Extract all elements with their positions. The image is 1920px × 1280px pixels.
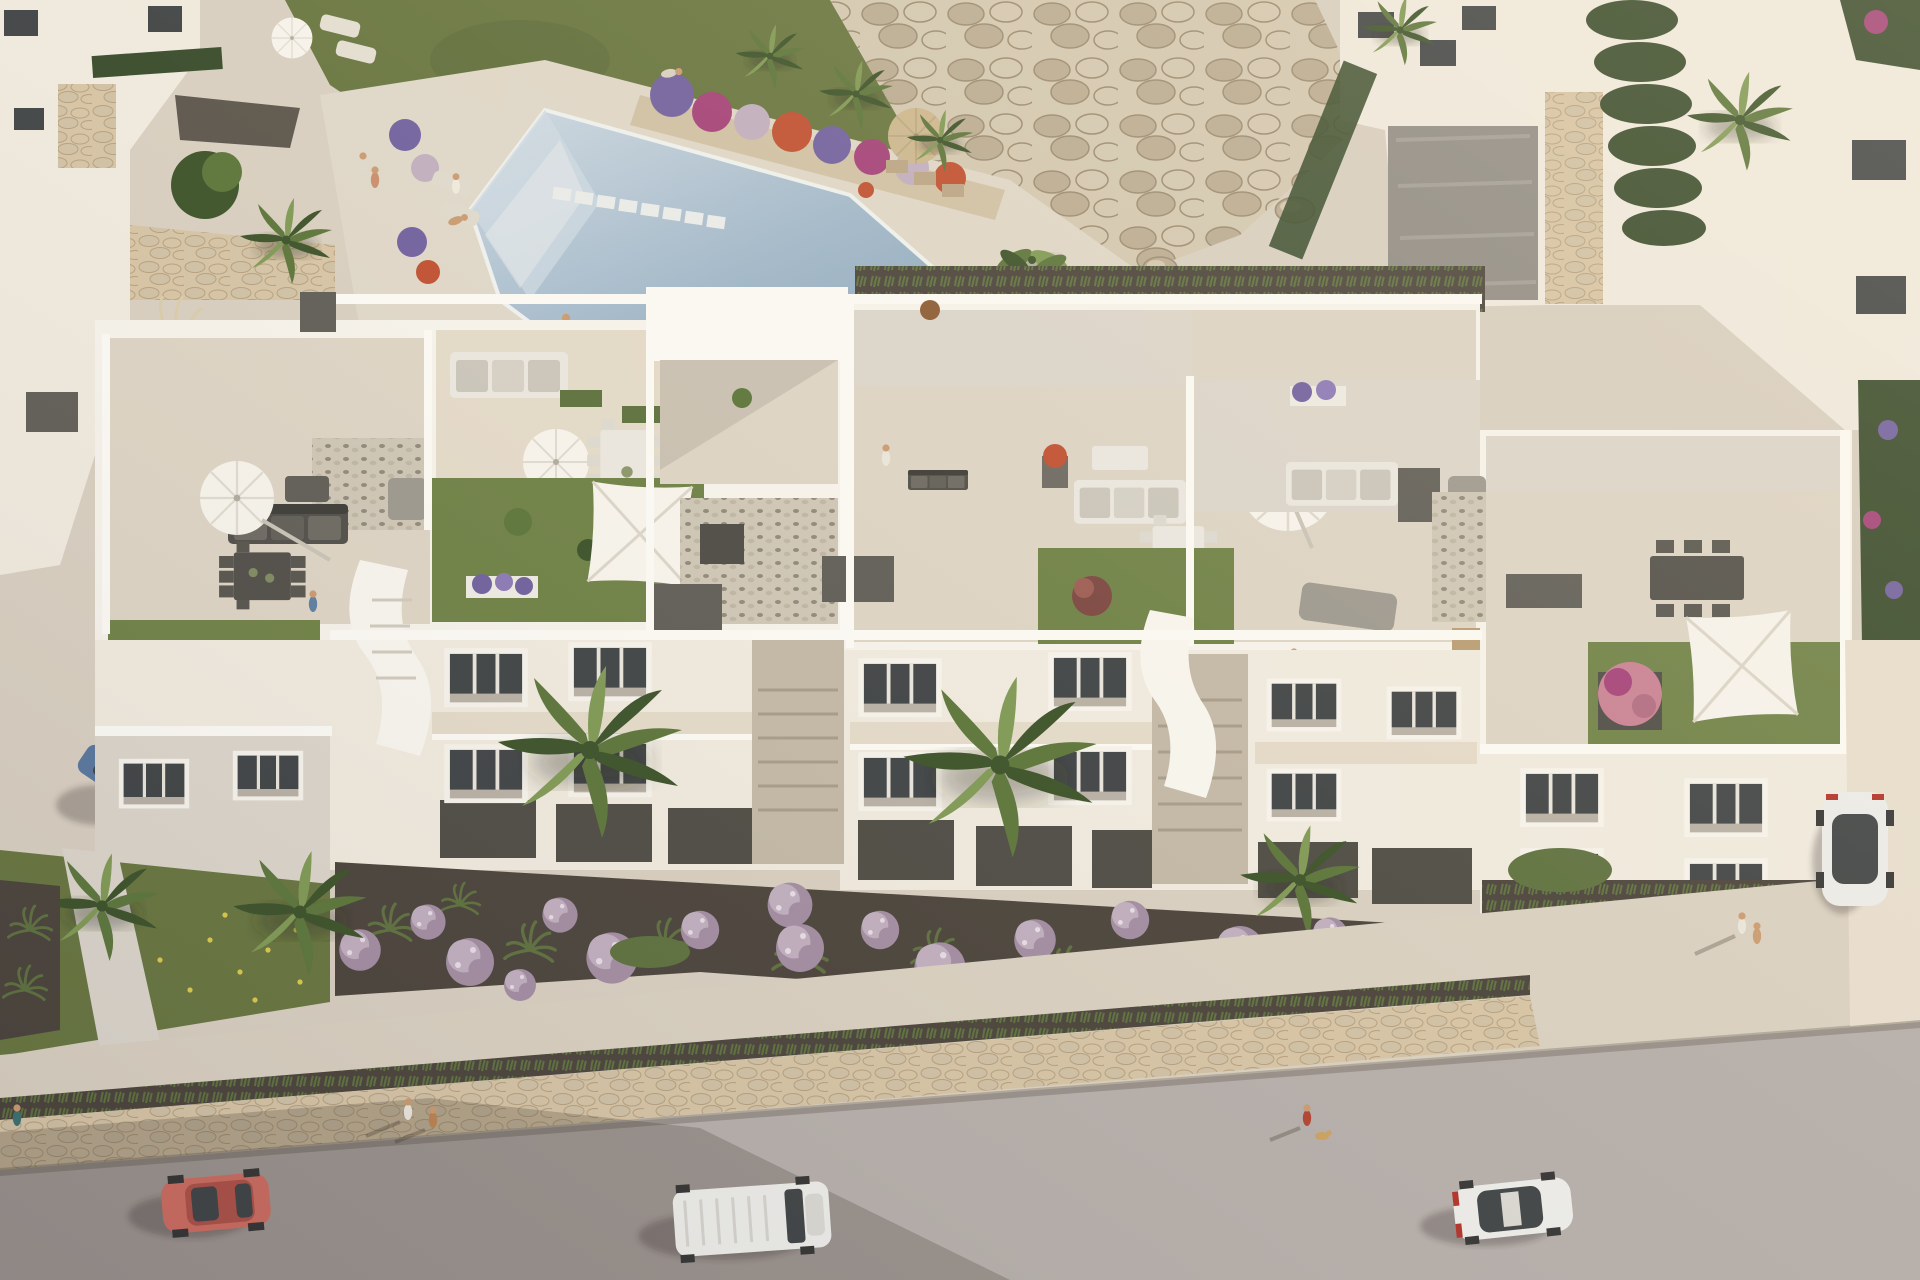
aerial-render <box>0 0 1920 1280</box>
light-overlay <box>0 0 1920 1280</box>
scene-canvas <box>0 0 1920 1280</box>
